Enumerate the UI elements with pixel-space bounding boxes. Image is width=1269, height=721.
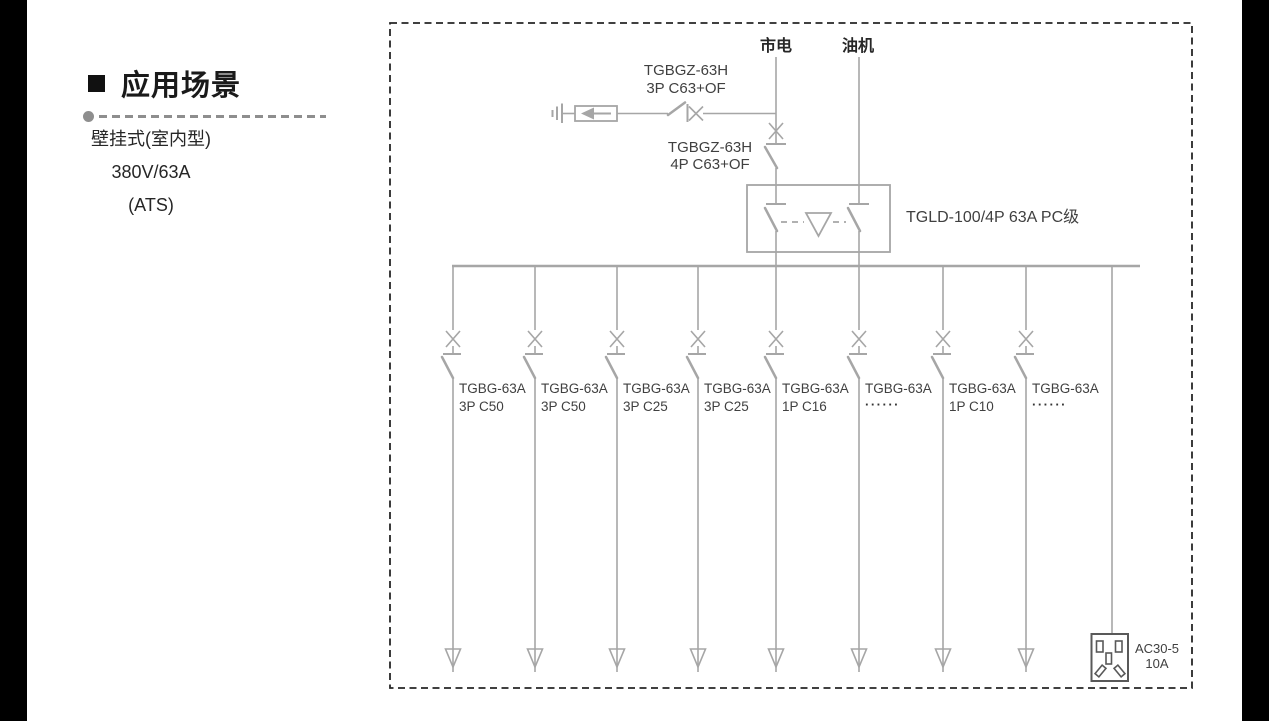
page-canvas: 应用场景 壁挂式(室内型) 380V/63A (ATS) 市电 油机: [0, 0, 1269, 721]
branch-spec: 3P C50: [541, 399, 586, 414]
branch-spec-dots: ······: [865, 397, 900, 412]
branch-name: TGBG-63A: [865, 381, 932, 396]
breaker-blade-icon: [848, 357, 859, 378]
branch-circuit-7: TGBG-63A 1P C10: [932, 266, 1016, 672]
breaker-x-icon: [446, 331, 460, 347]
breaker-blade-icon: [1015, 357, 1026, 378]
breaker-x-icon: [610, 331, 624, 347]
breaker-blade-icon: [765, 357, 776, 378]
branch-spec: 1P C10: [949, 399, 994, 414]
branch-spec: 3P C50: [459, 399, 504, 414]
ats-interlock-icon: [781, 213, 846, 236]
breaker-x-icon: [689, 107, 703, 121]
branch-circuit-4: TGBG-63A 3P C25: [687, 266, 771, 672]
surge-ground-branch: [553, 103, 777, 124]
branch-spec-dots: ······: [1032, 397, 1067, 412]
breaker-4p-name: TGBGZ-63H: [668, 139, 752, 156]
socket-model-label: AC30-5: [1135, 641, 1179, 656]
generator-source-label: 油机: [842, 36, 874, 55]
breaker-blade-icon: [606, 357, 617, 378]
branch-spec: 1P C16: [782, 399, 827, 414]
breaker-x-icon: [528, 331, 542, 347]
breaker-x-icon: [691, 331, 705, 347]
branch-name: TGBG-63A: [623, 381, 690, 396]
branch-circuit-3: TGBG-63A 3P C25: [606, 266, 690, 672]
breaker-blade-icon: [442, 357, 453, 378]
branch-spec: 3P C25: [704, 399, 749, 414]
branch-circuit-1: TGBG-63A 3P C50: [442, 266, 526, 672]
breaker-x-icon: [852, 331, 866, 347]
branch-name: TGBG-63A: [1032, 381, 1099, 396]
breaker-x-icon: [1019, 331, 1033, 347]
breaker-3p-spec: 3P C63+OF: [646, 80, 725, 97]
mains-feeder-line: [765, 57, 786, 266]
socket-rating-label: 10A: [1145, 656, 1168, 671]
breaker-blade-icon: [765, 147, 777, 168]
single-line-diagram: 市电 油机: [0, 0, 1269, 721]
ats-mains-switch-icon: [765, 204, 786, 231]
branch-name: TGBG-63A: [541, 381, 608, 396]
branch-circuit-6: TGBG-63A ······: [848, 266, 932, 672]
diagram-dashed-border: [390, 23, 1192, 688]
breaker-blade-icon: [932, 357, 943, 378]
ats-generator-switch-icon: [848, 204, 869, 231]
branch-name: TGBG-63A: [949, 381, 1016, 396]
breaker-4p-spec: 4P C63+OF: [670, 156, 749, 173]
breaker-blade-icon: [687, 357, 698, 378]
branch-circuit-5: TGBG-63A 1P C16: [765, 266, 849, 672]
branch-spec: 3P C25: [623, 399, 668, 414]
breaker-3p-name: TGBGZ-63H: [644, 62, 728, 79]
branch-name: TGBG-63A: [782, 381, 849, 396]
branch-circuit-8: TGBG-63A ······: [1015, 266, 1099, 672]
ats-switch-box: [747, 185, 890, 252]
socket-branch: AC30-5 10A: [1092, 266, 1180, 681]
branch-name: TGBG-63A: [704, 381, 771, 396]
ats-label: TGLD-100/4P 63A PC级: [906, 208, 1079, 226]
breaker-blade-icon: [524, 357, 535, 378]
mains-source-label: 市电: [760, 36, 792, 55]
breaker-x-icon: [769, 331, 783, 347]
socket-outlet-icon: [1092, 634, 1129, 681]
branch-circuit-2: TGBG-63A 3P C50: [524, 266, 608, 672]
breaker-3p-symbol: [668, 103, 703, 123]
ground-icon: [553, 104, 563, 124]
branch-name: TGBG-63A: [459, 381, 526, 396]
surge-arrester-icon: [575, 106, 617, 121]
breaker-x-icon: [936, 331, 950, 347]
